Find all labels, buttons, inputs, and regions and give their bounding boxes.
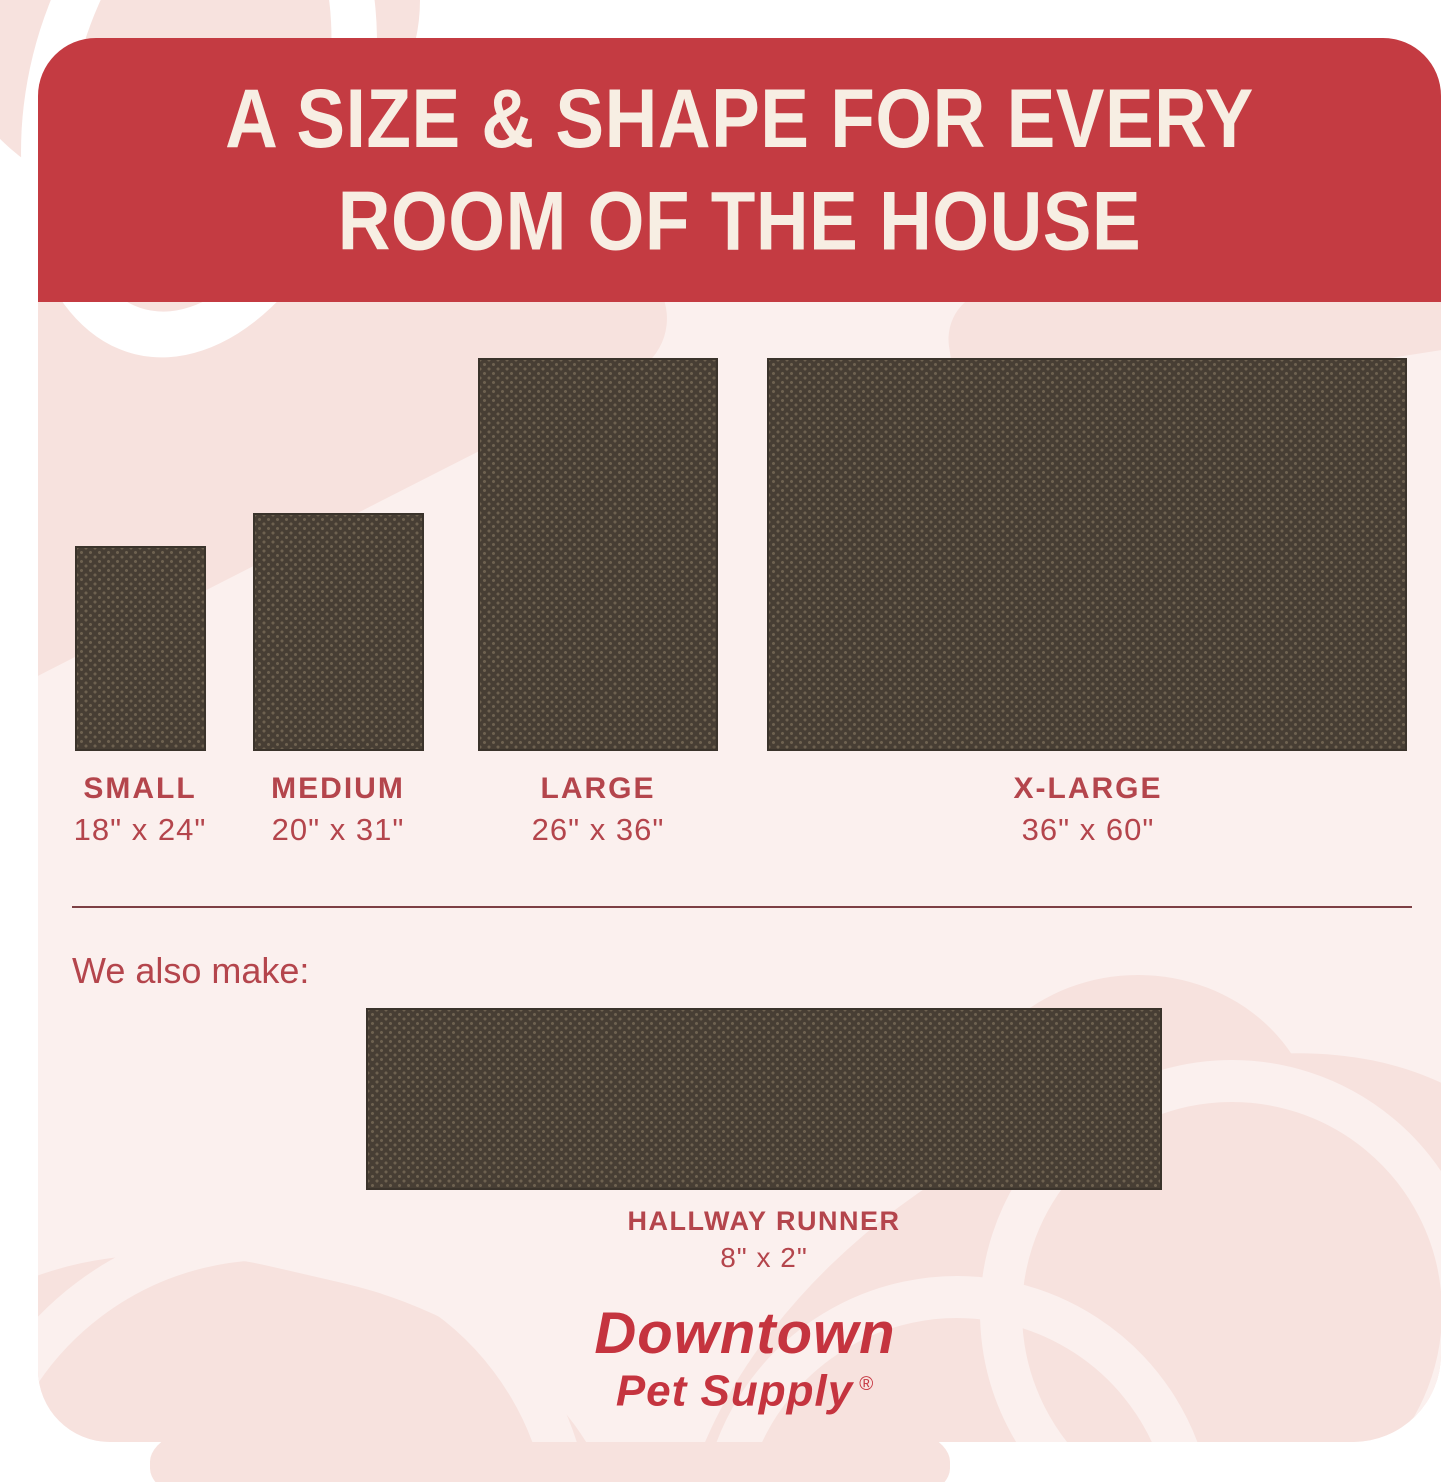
decor-swoosh-bottom-left: [38, 1191, 667, 1442]
brand-subtitle: Pet Supply®: [594, 1360, 895, 1417]
size-name: X-LARGE: [1014, 772, 1163, 806]
section-divider: [72, 906, 1412, 908]
rug-swatch-hallway-runner: [366, 1008, 1162, 1190]
size-label-small: SMALL 18" x 24": [74, 772, 207, 848]
size-label-xlarge: X-LARGE 36" x 60": [1014, 772, 1163, 848]
size-label-large: LARGE 26" x 36": [532, 772, 665, 848]
size-name: SMALL: [74, 772, 207, 806]
size-label-hallway-runner: HALLWAY RUNNER 8" x 2": [627, 1206, 900, 1274]
size-dimensions: 8" x 2": [627, 1242, 900, 1274]
page-title-line1: A SIZE & SHAPE FOR EVERY: [225, 68, 1254, 170]
size-label-medium: MEDIUM 20" x 31": [271, 772, 405, 848]
decor-ring-3: [38, 1176, 634, 1442]
rug-swatch-xlarge: [767, 358, 1407, 751]
also-make-note: We also make:: [72, 950, 309, 992]
rug-swatch-large: [478, 358, 718, 751]
registered-trademark-symbol: ®: [859, 1374, 874, 1395]
size-dimensions: 18" x 24": [74, 812, 207, 848]
size-dimensions: 36" x 60": [1014, 812, 1163, 848]
size-name: HALLWAY RUNNER: [627, 1206, 900, 1237]
page-title: A SIZE & SHAPE FOR EVERY ROOM OF THE HOU…: [225, 68, 1254, 273]
brand-logo: Downtown Pet Supply®: [594, 1308, 895, 1417]
brand-subtitle-text: Pet Supply: [616, 1367, 853, 1416]
size-dimensions: 20" x 31": [271, 812, 405, 848]
brand-name: Downtown: [594, 1308, 895, 1360]
size-dimensions: 26" x 36": [532, 812, 665, 848]
size-name: MEDIUM: [271, 772, 405, 806]
page-title-line2: ROOM OF THE HOUSE: [225, 170, 1254, 272]
rug-swatch-medium: [253, 513, 424, 751]
infographic-canvas: A SIZE & SHAPE FOR EVERY ROOM OF THE HOU…: [0, 0, 1445, 1482]
rug-swatch-small: [75, 546, 206, 751]
size-name: LARGE: [532, 772, 665, 806]
header-banner: A SIZE & SHAPE FOR EVERY ROOM OF THE HOU…: [38, 38, 1441, 302]
